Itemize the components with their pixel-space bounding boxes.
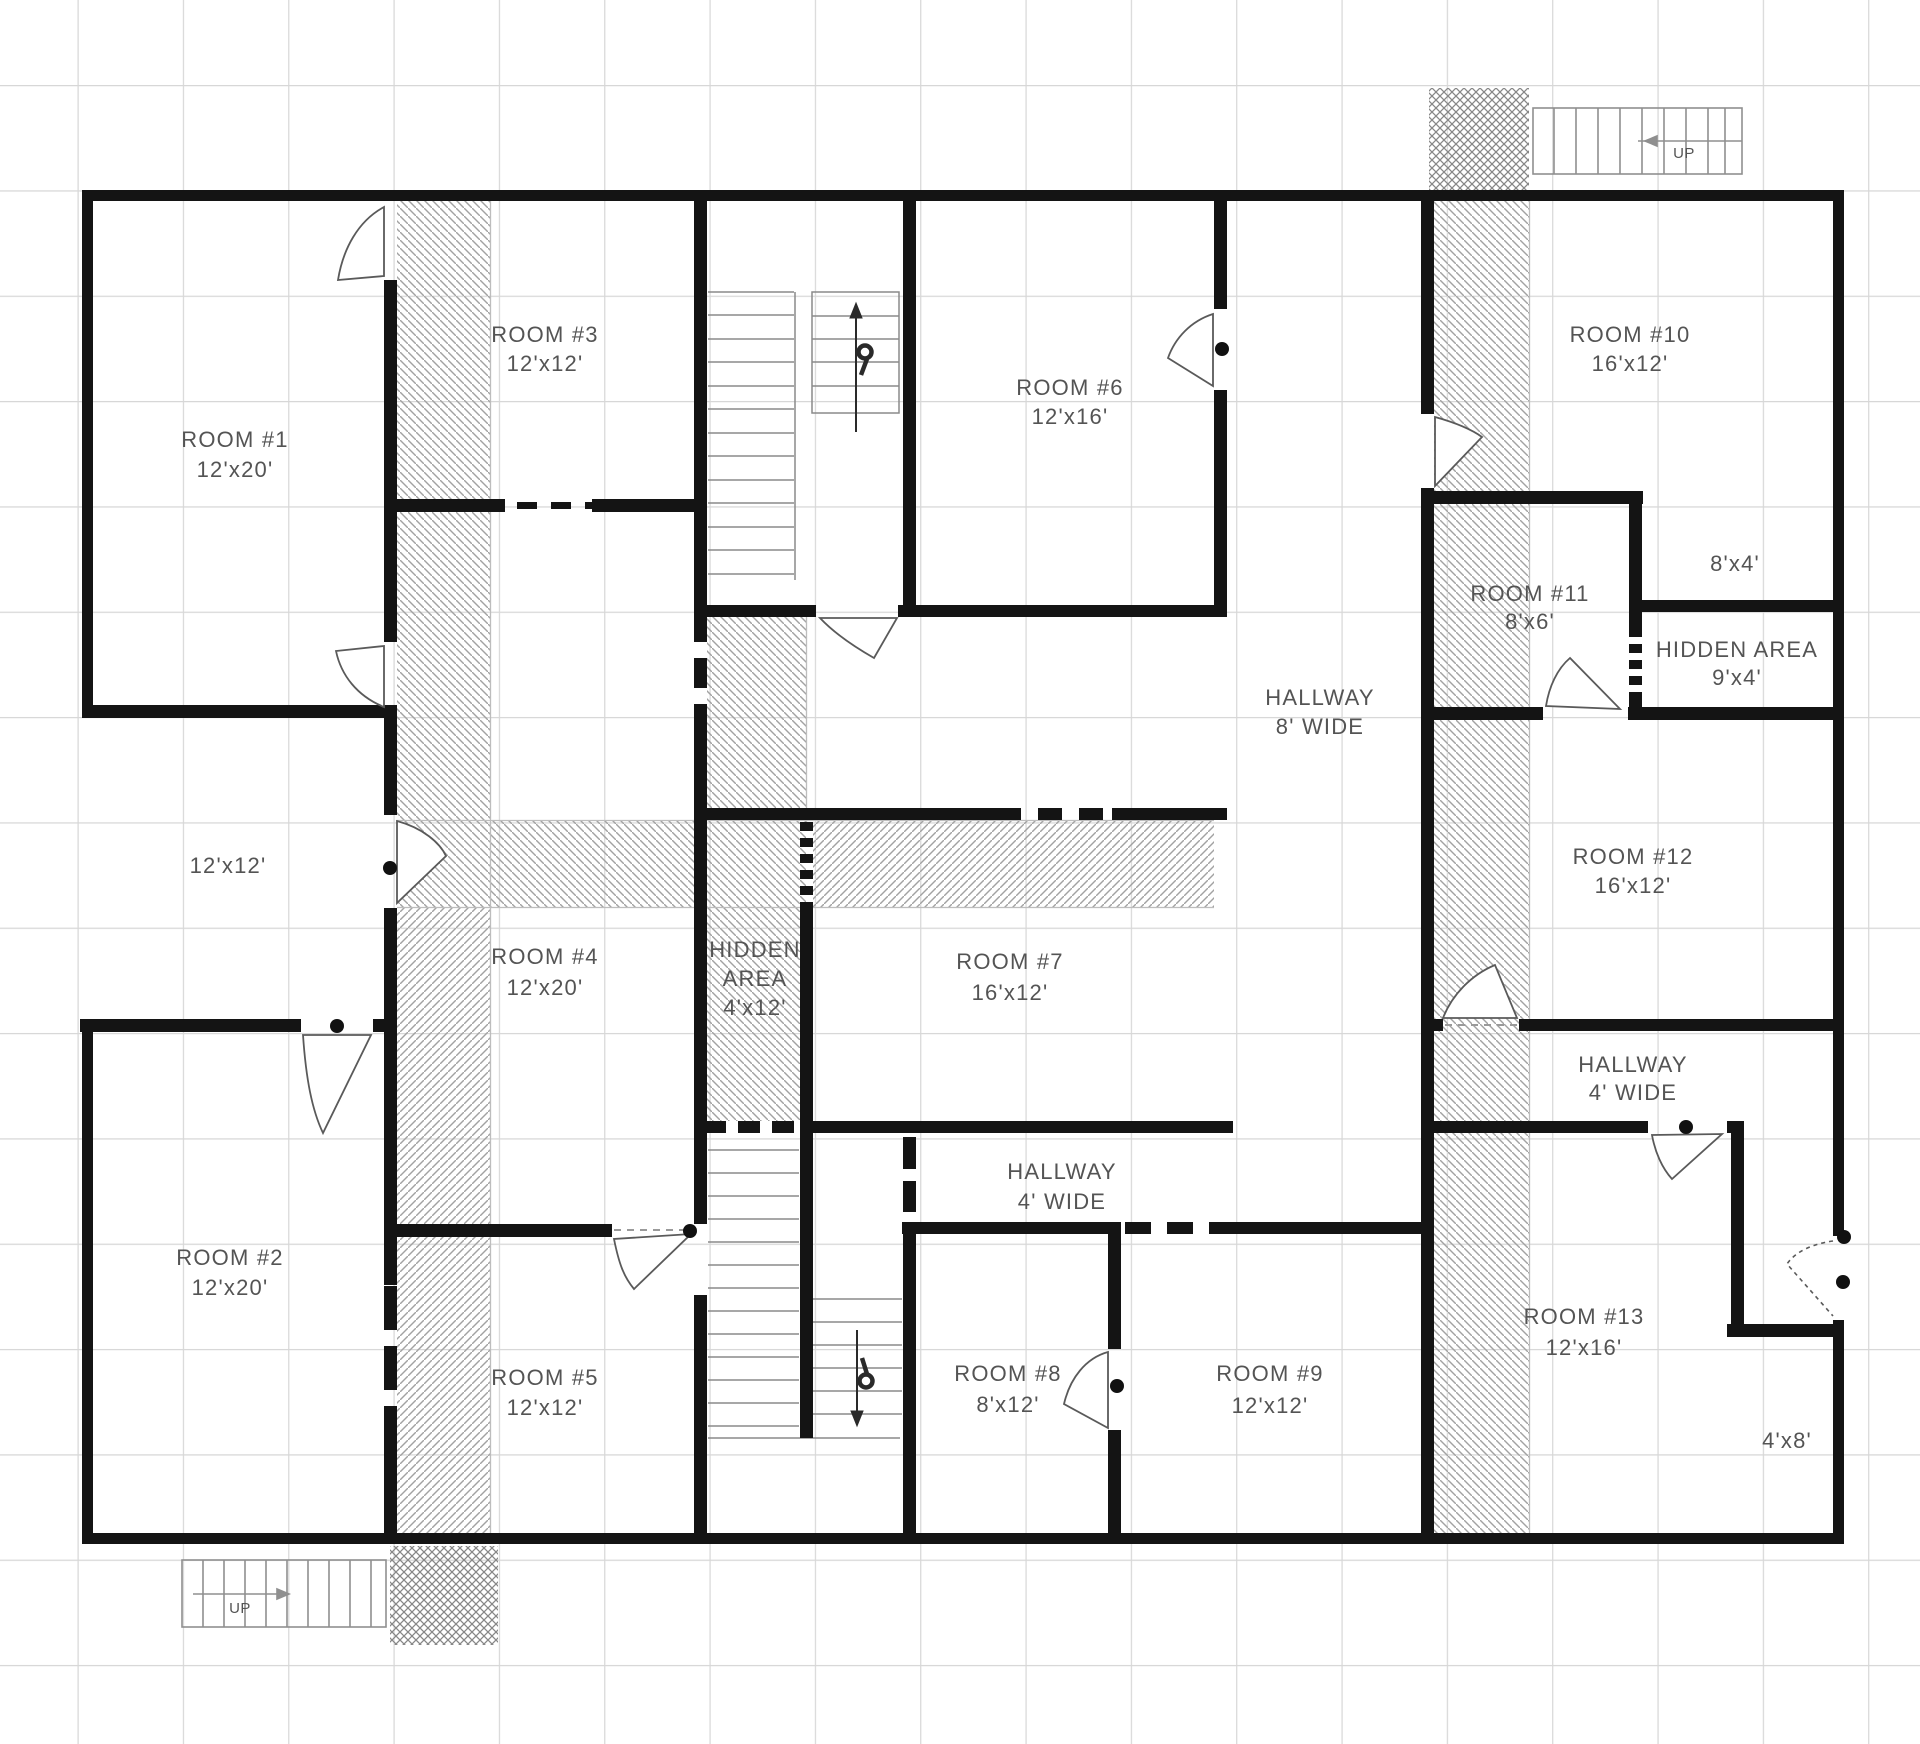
- svg-text:UP: UP: [1673, 145, 1695, 162]
- svg-text:ROOM #3: ROOM #3: [491, 322, 598, 347]
- svg-text:UP: UP: [229, 1600, 251, 1617]
- svg-text:ROOM #8: ROOM #8: [954, 1361, 1061, 1386]
- svg-text:ROOM #9: ROOM #9: [1216, 1361, 1323, 1386]
- svg-text:9'x4': 9'x4': [1712, 665, 1762, 690]
- svg-text:12'x12': 12'x12': [507, 351, 584, 376]
- svg-text:4' WIDE: 4' WIDE: [1589, 1080, 1677, 1105]
- svg-text:4' WIDE: 4' WIDE: [1018, 1189, 1106, 1214]
- svg-text:12'x20': 12'x20': [197, 457, 274, 482]
- svg-text:ROOM #12: ROOM #12: [1573, 844, 1694, 869]
- svg-text:16'x12': 16'x12': [1592, 351, 1669, 376]
- svg-text:ROOM #13: ROOM #13: [1524, 1304, 1645, 1329]
- svg-text:8'x6': 8'x6': [1505, 609, 1555, 634]
- svg-text:ROOM #5: ROOM #5: [491, 1365, 598, 1390]
- svg-text:ROOM #11: ROOM #11: [1470, 581, 1589, 606]
- svg-text:12'x12': 12'x12': [190, 853, 267, 878]
- svg-text:AREA: AREA: [723, 966, 788, 991]
- svg-text:HIDDEN: HIDDEN: [709, 937, 801, 962]
- svg-text:8'x4': 8'x4': [1710, 551, 1760, 576]
- svg-text:4'x8': 4'x8': [1762, 1428, 1812, 1453]
- svg-text:12'x12': 12'x12': [1232, 1393, 1309, 1418]
- svg-text:HALLWAY: HALLWAY: [1578, 1052, 1687, 1077]
- svg-text:HALLWAY: HALLWAY: [1007, 1159, 1116, 1184]
- svg-text:ROOM #4: ROOM #4: [491, 944, 598, 969]
- svg-text:HALLWAY: HALLWAY: [1265, 685, 1374, 710]
- svg-text:12'x16': 12'x16': [1546, 1335, 1623, 1360]
- svg-text:ROOM #10: ROOM #10: [1570, 322, 1691, 347]
- svg-text:HIDDEN AREA: HIDDEN AREA: [1656, 637, 1818, 662]
- svg-text:12'x20': 12'x20': [192, 1275, 269, 1300]
- svg-text:12'x16': 12'x16': [1032, 404, 1109, 429]
- svg-text:4'x12': 4'x12': [723, 995, 786, 1020]
- svg-text:ROOM #6: ROOM #6: [1016, 375, 1123, 400]
- svg-text:8'x12': 8'x12': [976, 1392, 1039, 1417]
- svg-text:8' WIDE: 8' WIDE: [1276, 714, 1364, 739]
- svg-text:ROOM #2: ROOM #2: [176, 1245, 283, 1270]
- svg-text:ROOM #7: ROOM #7: [956, 949, 1063, 974]
- svg-text:ROOM #1: ROOM #1: [181, 427, 288, 452]
- svg-text:12'x12': 12'x12': [507, 1395, 584, 1420]
- svg-text:16'x12': 16'x12': [1595, 873, 1672, 898]
- svg-text:16'x12': 16'x12': [972, 980, 1049, 1005]
- svg-text:12'x20': 12'x20': [507, 975, 584, 1000]
